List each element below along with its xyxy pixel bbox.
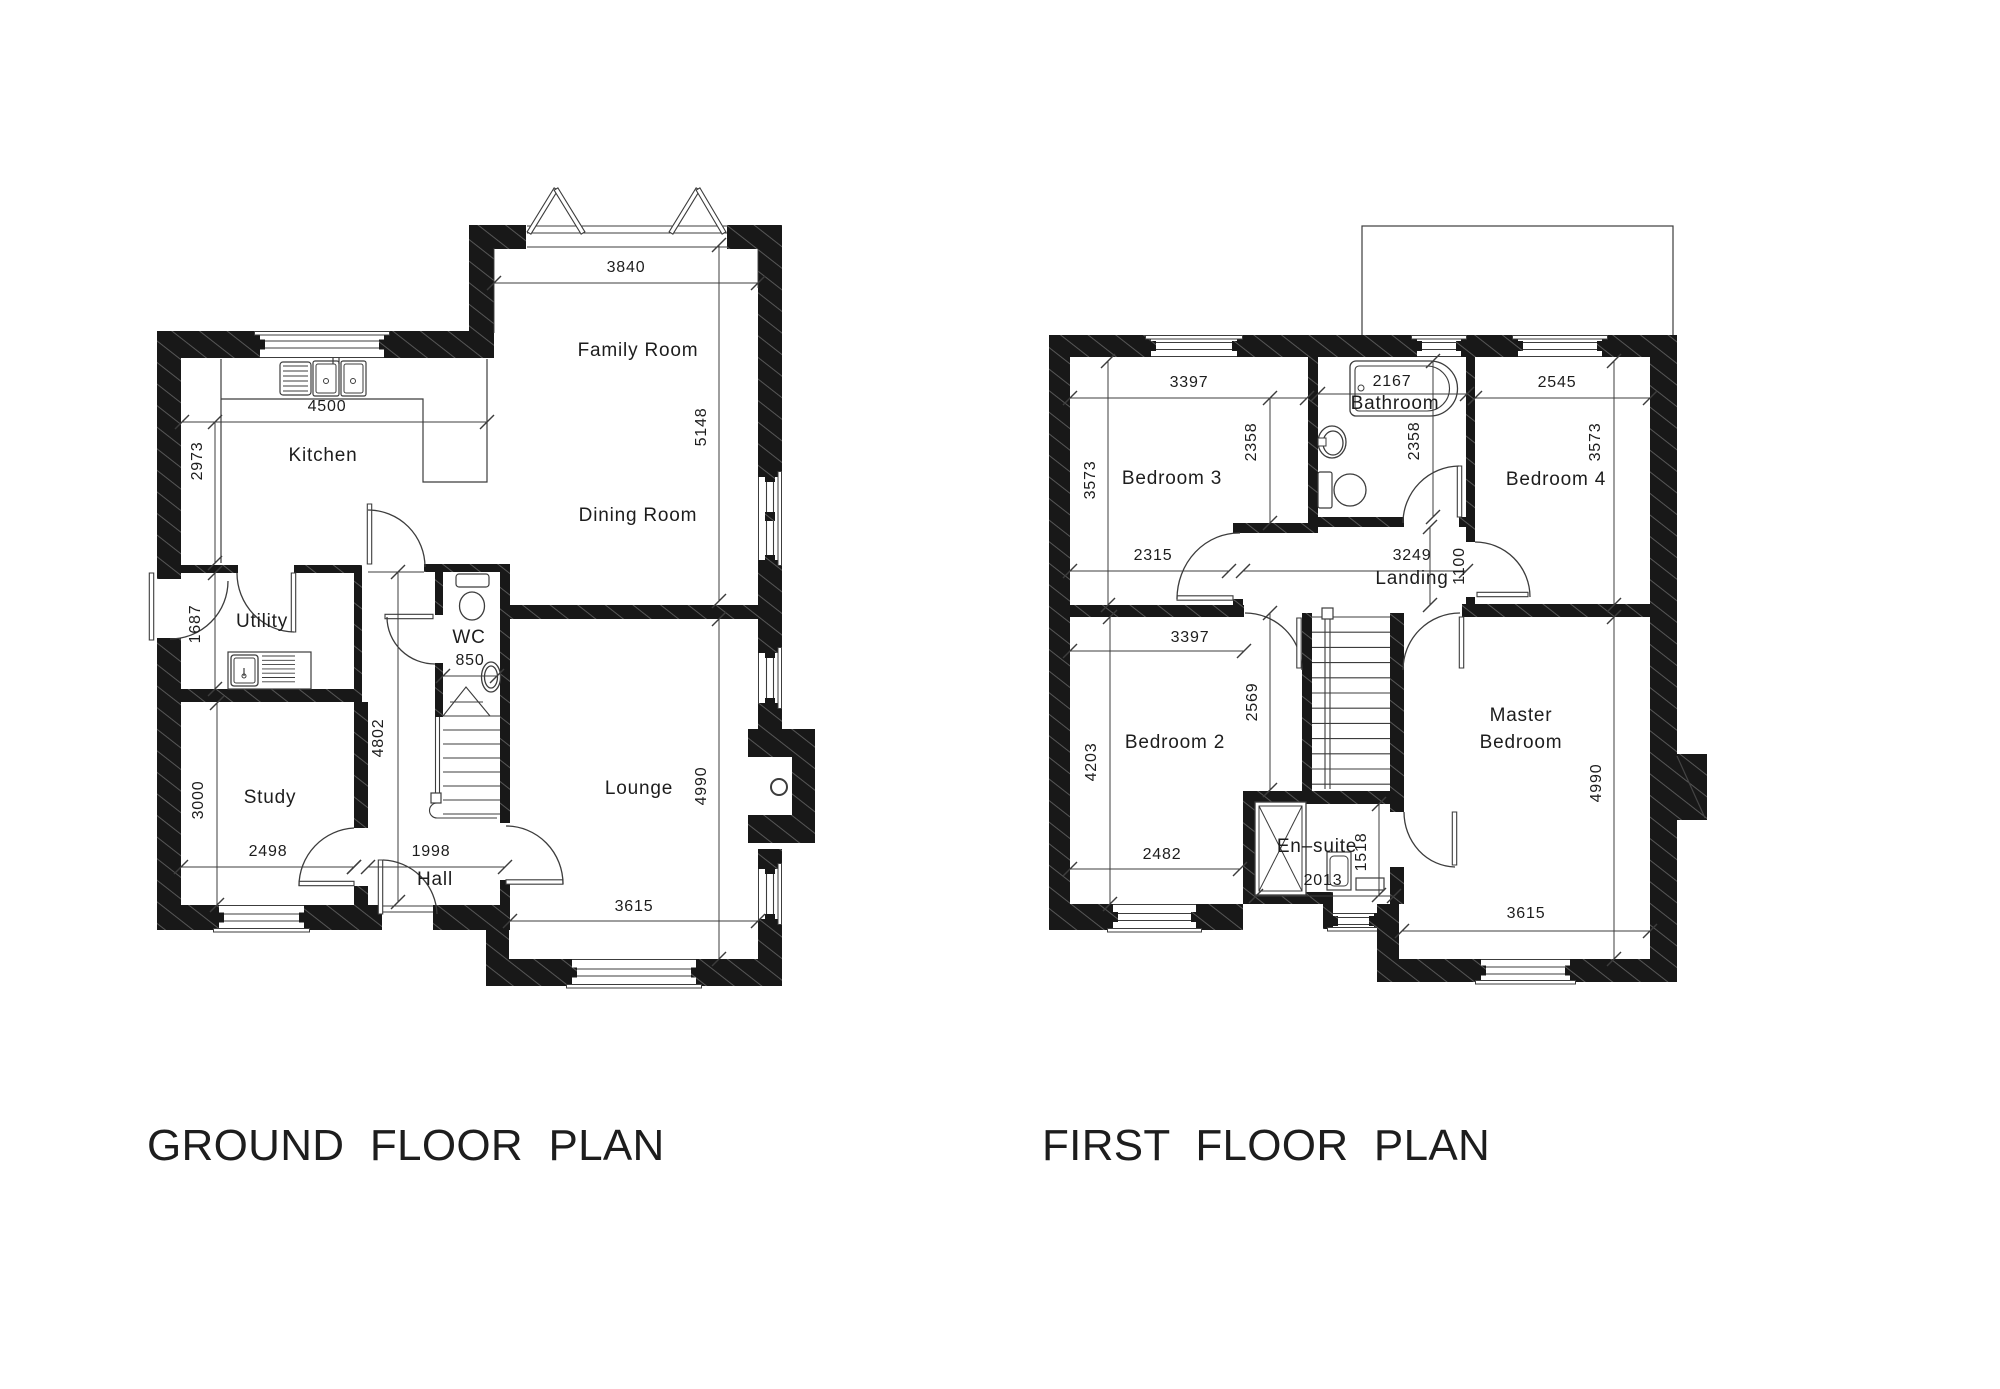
svg-text:3397: 3397 — [1171, 629, 1210, 646]
svg-text:2569: 2569 — [1244, 683, 1261, 722]
svg-text:2167: 2167 — [1373, 373, 1412, 390]
svg-text:2358: 2358 — [1406, 422, 1423, 461]
svg-text:WC: WC — [452, 627, 485, 648]
svg-text:3615: 3615 — [1507, 905, 1546, 922]
svg-text:Bedroom: Bedroom — [1480, 732, 1563, 753]
svg-text:3000: 3000 — [190, 781, 207, 820]
svg-text:4500: 4500 — [308, 398, 347, 415]
svg-text:2358: 2358 — [1243, 423, 1260, 462]
svg-text:1998: 1998 — [412, 843, 451, 860]
svg-text:1100: 1100 — [1451, 547, 1468, 585]
svg-text:Master: Master — [1490, 705, 1553, 726]
svg-text:Kitchen: Kitchen — [289, 445, 358, 466]
svg-text:3573: 3573 — [1082, 461, 1099, 500]
svg-text:4990: 4990 — [693, 767, 710, 806]
svg-text:1687: 1687 — [187, 605, 204, 644]
svg-text:5148: 5148 — [693, 408, 710, 447]
svg-text:Bedroom 3: Bedroom 3 — [1122, 468, 1222, 489]
svg-text:Utility: Utility — [236, 611, 288, 632]
svg-text:FIRST FLOOR PLAN: FIRST FLOOR PLAN — [1042, 1121, 1490, 1170]
svg-text:Hall: Hall — [417, 869, 453, 890]
svg-text:Bedroom 2: Bedroom 2 — [1125, 732, 1225, 753]
svg-text:2482: 2482 — [1143, 846, 1182, 863]
svg-text:3397: 3397 — [1170, 374, 1209, 391]
svg-text:3615: 3615 — [615, 898, 654, 915]
svg-text:4990: 4990 — [1588, 764, 1605, 803]
svg-text:Lounge: Lounge — [605, 778, 673, 799]
svg-text:GROUND FLOOR PLAN: GROUND FLOOR PLAN — [147, 1121, 665, 1170]
svg-text:Bathroom: Bathroom — [1351, 393, 1440, 414]
svg-text:4802: 4802 — [370, 719, 387, 758]
svg-text:2013: 2013 — [1304, 872, 1343, 889]
svg-text:Study: Study — [244, 787, 297, 808]
svg-text:3840: 3840 — [607, 259, 646, 276]
svg-text:Dining Room: Dining Room — [579, 505, 698, 526]
svg-text:2545: 2545 — [1538, 374, 1577, 391]
svg-text:2498: 2498 — [249, 843, 288, 860]
svg-text:850: 850 — [455, 652, 484, 669]
svg-text:Family Room: Family Room — [578, 340, 699, 361]
svg-text:2315: 2315 — [1134, 547, 1173, 564]
svg-text:4203: 4203 — [1083, 743, 1100, 782]
svg-text:3573: 3573 — [1587, 423, 1604, 462]
svg-text:3249: 3249 — [1393, 547, 1432, 564]
svg-text:En–suite: En–suite — [1277, 836, 1357, 857]
svg-text:Bedroom 4: Bedroom 4 — [1506, 469, 1606, 490]
svg-text:2973: 2973 — [189, 442, 206, 481]
svg-text:Landing: Landing — [1375, 568, 1448, 589]
